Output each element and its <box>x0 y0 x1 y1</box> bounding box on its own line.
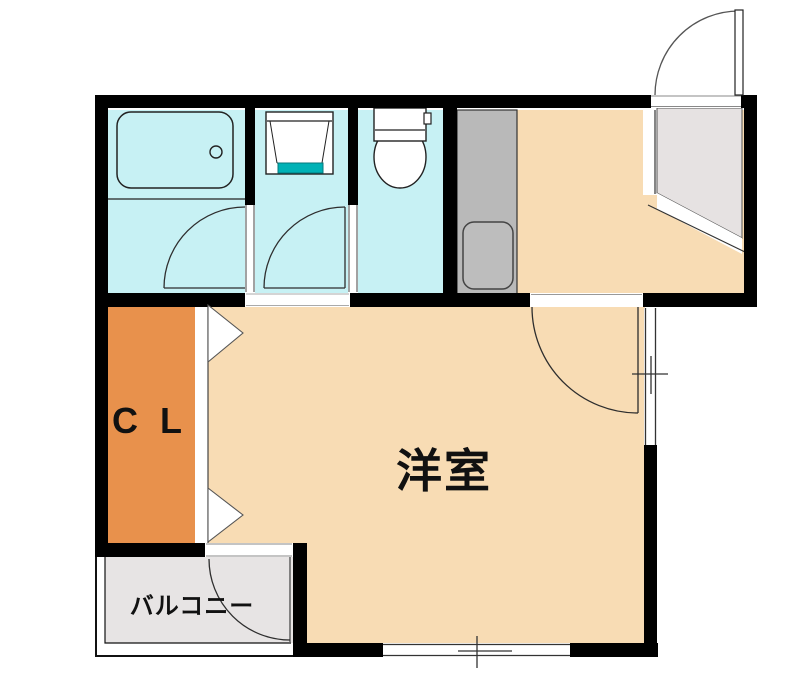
wall-entry-bottom <box>643 293 757 307</box>
kitchen-sink-icon <box>463 222 513 289</box>
floor-plan: 洋室 C L バルコニー <box>0 0 800 700</box>
entry-door-leaf <box>735 10 743 95</box>
room-label: 洋室 <box>396 445 492 497</box>
balcony-label: バルコニー <box>130 593 255 620</box>
washbasin-icon <box>266 112 333 174</box>
wall-bottom-left <box>293 643 383 657</box>
wall-balcony-right <box>293 543 307 657</box>
bathtub-icon <box>117 112 233 188</box>
wall-washroom-toilet <box>348 107 358 205</box>
washbasin-counter-strip <box>278 163 323 173</box>
wall-right-lower <box>644 445 657 657</box>
toilet-handle <box>424 113 431 124</box>
closet-label: C L <box>112 400 188 441</box>
washroom-opening <box>245 293 350 307</box>
wall-right-upper <box>744 95 757 307</box>
wall-left <box>95 95 108 557</box>
wall-mid-left <box>95 293 245 307</box>
toilet-tank <box>374 108 426 141</box>
room-door-opening <box>530 293 643 307</box>
wall-bath-washroom <box>245 107 255 205</box>
balcony-door-opening <box>205 543 293 557</box>
wall-toilet-kitchen <box>443 107 457 293</box>
kitchen-counter <box>457 110 517 294</box>
wall-closet-bottom <box>95 543 205 557</box>
wall-mid-center <box>350 293 530 307</box>
wall-top <box>95 95 651 108</box>
floor-plan-canvas: 洋室 C L バルコニー <box>0 0 800 700</box>
